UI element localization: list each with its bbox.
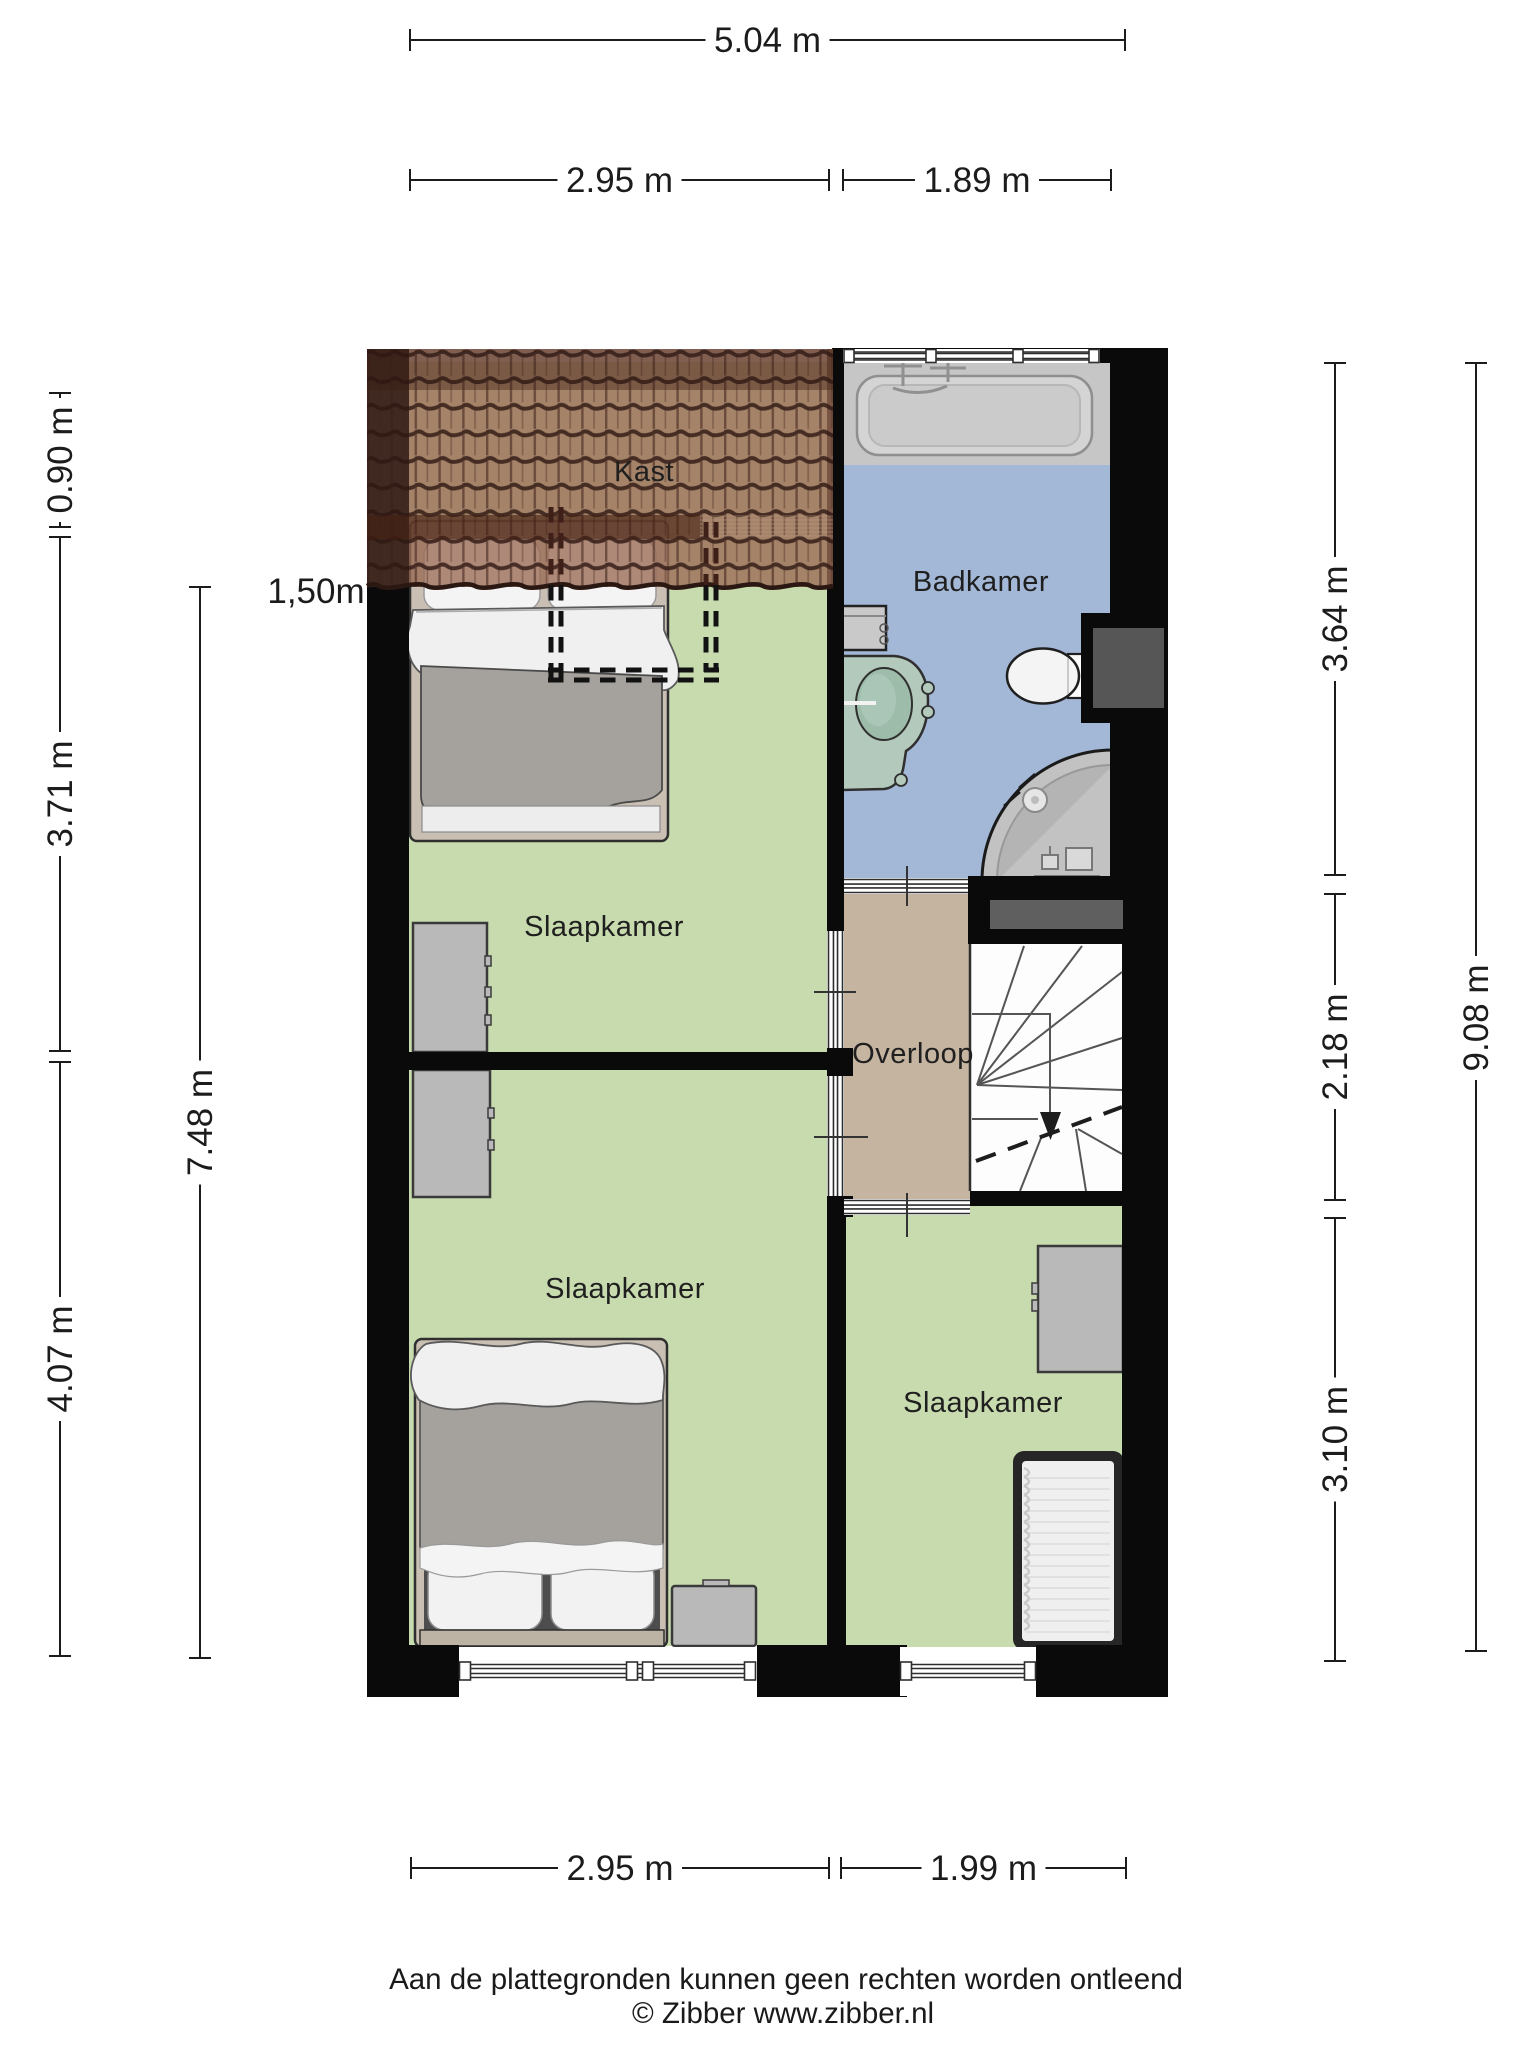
svg-text:Slaapkamer: Slaapkamer — [903, 1387, 1063, 1419]
svg-text:3.10 m: 3.10 m — [1316, 1386, 1355, 1493]
svg-text:7.48 m: 7.48 m — [181, 1069, 220, 1176]
svg-text:Slaapkamer: Slaapkamer — [524, 911, 684, 943]
svg-text:Overloop: Overloop — [852, 1038, 974, 1070]
svg-text:9.08 m: 9.08 m — [1457, 965, 1496, 1072]
svg-text:Kast: Kast — [614, 456, 674, 488]
svg-text:4.07 m: 4.07 m — [41, 1306, 80, 1413]
svg-text:Badkamer: Badkamer — [913, 566, 1049, 598]
svg-text:2.95 m: 2.95 m — [566, 161, 673, 200]
svg-text:1,50m: 1,50m — [267, 572, 364, 611]
svg-text:Aan de plattegronden kunnen ge: Aan de plattegronden kunnen geen rechten… — [389, 1963, 1183, 1996]
svg-text:© Zibber www.zibber.nl: © Zibber www.zibber.nl — [632, 1997, 934, 2030]
svg-text:3.71 m: 3.71 m — [41, 741, 80, 848]
svg-text:0.90 m: 0.90 m — [41, 407, 80, 514]
svg-text:1.89 m: 1.89 m — [924, 161, 1031, 200]
svg-text:1.99 m: 1.99 m — [930, 1849, 1037, 1888]
svg-text:2.95 m: 2.95 m — [567, 1849, 674, 1888]
svg-text:5.04 m: 5.04 m — [714, 21, 821, 60]
svg-text:2.18 m: 2.18 m — [1316, 994, 1355, 1101]
svg-text:3.64 m: 3.64 m — [1316, 566, 1355, 673]
svg-text:Slaapkamer: Slaapkamer — [545, 1273, 705, 1305]
